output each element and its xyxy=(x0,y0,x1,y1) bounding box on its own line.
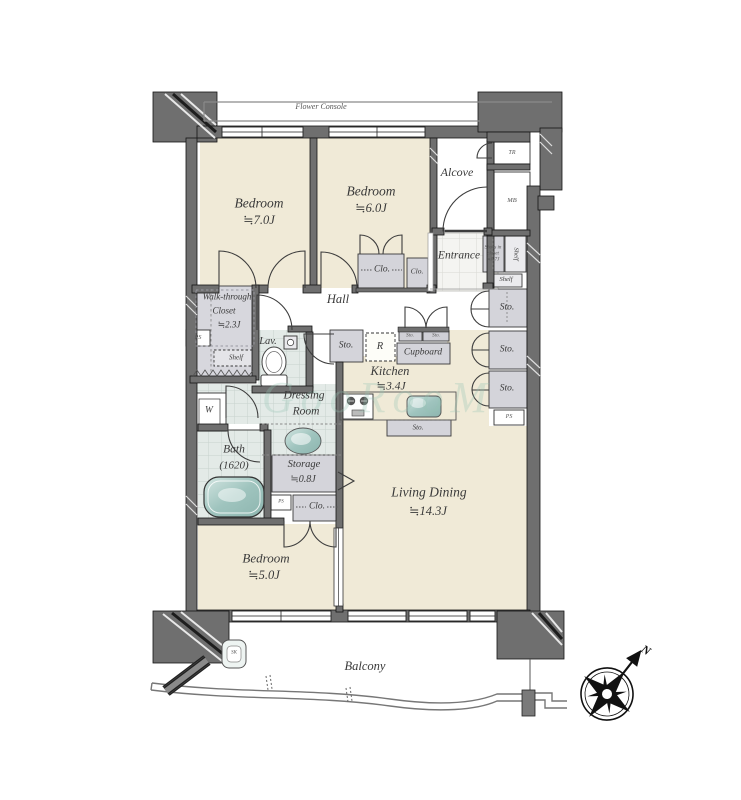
shelf-wtc-label: Shelf xyxy=(229,355,243,362)
ps-right-label: PS xyxy=(506,414,513,420)
cupboard-french-doors xyxy=(405,307,447,328)
flower-console-label: Flower Console xyxy=(295,103,346,111)
storage-hall-label: Sto. xyxy=(339,341,354,351)
wtc-line2: Closet xyxy=(212,307,235,316)
dressing-line1: Dressing xyxy=(283,390,324,402)
living-dining-label: Living Dining xyxy=(391,485,466,499)
lavatory-door xyxy=(257,295,292,330)
wtc-line1: Walk-through xyxy=(203,293,252,302)
slop-sink-label: SK xyxy=(231,651,237,656)
storage-small2-label: Sto. xyxy=(432,334,440,339)
storage-right2-label: Sto. xyxy=(500,345,515,355)
kitchen-size: ≒3.4J xyxy=(376,381,405,393)
balcony-label: Balcony xyxy=(345,660,386,673)
refrigerator-label: R xyxy=(377,342,383,353)
shelf-entrance-label: Shelf xyxy=(500,277,513,284)
storage-kitchen-label: Sto. xyxy=(413,425,424,432)
storage08-size: ≒0.8J xyxy=(290,475,315,485)
bath-size: (1620) xyxy=(219,461,248,472)
balcony-post xyxy=(522,690,535,716)
cupboard-label: Cupboard xyxy=(404,348,442,358)
bedroom6-size: ≒6.0J xyxy=(355,202,387,215)
storage-small1-label: Sto. xyxy=(406,334,414,339)
washbasin-icon xyxy=(285,428,321,454)
ps-left-label: PS xyxy=(195,335,202,341)
shoes-closet-line3: ≒0.7J xyxy=(487,258,500,263)
storage08-label: Storage xyxy=(288,460,321,471)
closet6-label: Clo. xyxy=(374,265,390,275)
front-door xyxy=(443,187,487,231)
bedroom7-label: Bedroom xyxy=(235,196,284,210)
alcove-label: Alcove xyxy=(441,166,474,178)
lavatory-label: Lav. xyxy=(259,337,277,348)
kitchen-label: Kitchen xyxy=(371,365,410,378)
hall-label: Hall xyxy=(327,293,349,306)
dressing-line2: Room xyxy=(293,406,320,418)
shoes-closet-line1: Shoes in xyxy=(485,246,502,251)
bedroom6-label: Bedroom xyxy=(347,184,396,198)
meter-box-label: MB xyxy=(507,198,516,205)
shoes-closet-line2: closet xyxy=(487,252,499,257)
closet5-label: Clo. xyxy=(309,502,325,512)
floorplan-page: GooRooM Flower Console Bedroom ≒7.0J Bed… xyxy=(0,0,741,800)
living-dining-size: ≒14.3J xyxy=(409,505,447,518)
entrance-label: Entrance xyxy=(438,250,480,262)
closet6-small-label: Clo. xyxy=(411,267,424,275)
shelf-vertical-label: Shelf xyxy=(512,248,519,261)
storage-right3-label: Sto. xyxy=(500,384,515,394)
washer-label: W xyxy=(205,406,213,416)
bathtub-icon xyxy=(204,477,264,517)
bedroom7-size: ≒7.0J xyxy=(243,214,275,227)
trunk-room-label: TR xyxy=(508,150,515,156)
bath-label: Bath xyxy=(223,444,245,456)
ps-middle-label: PS xyxy=(278,500,284,505)
bedroom5-label: Bedroom xyxy=(242,552,289,565)
wtc-line3: ≒2.3J xyxy=(218,321,241,330)
storage-right1-label: Sto. xyxy=(500,303,515,313)
storage-right1-doors xyxy=(471,291,489,327)
bedroom5-size: ≒5.0J xyxy=(248,569,280,582)
